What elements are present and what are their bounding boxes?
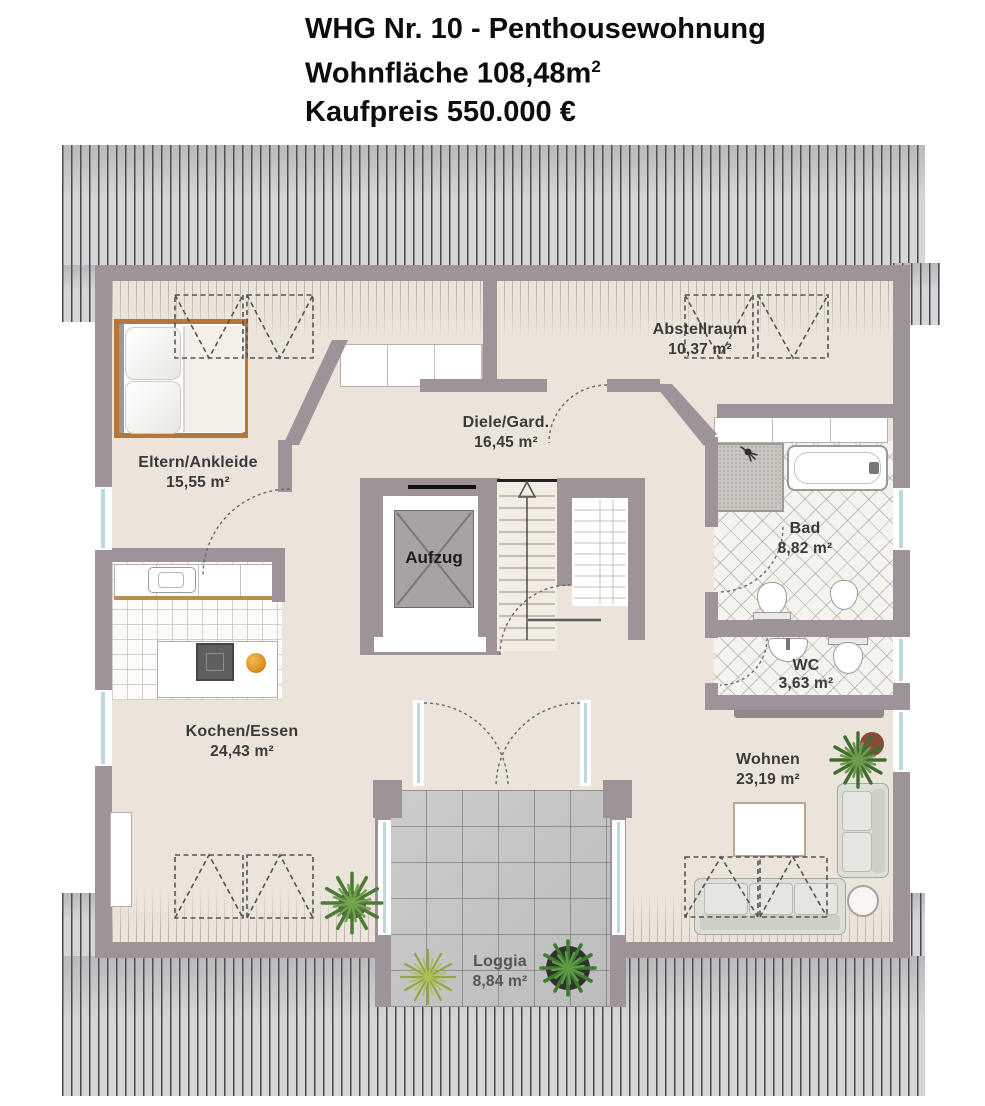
sofa-backrest (700, 915, 840, 930)
room-label-bad: Bad 8,82 m² (778, 519, 833, 559)
room-name: Kochen/Essen (186, 722, 299, 742)
kitchen-counter-edge (114, 596, 282, 600)
room-label-aufzug: Aufzug (405, 548, 463, 568)
bathroom-cabinets (714, 417, 888, 443)
room-name: Abstellraum (653, 320, 748, 340)
kitchen-sink-basin (158, 572, 184, 588)
roof-step-bottom-left (62, 893, 95, 956)
sofa-cushion (842, 832, 872, 872)
wall-diele-west (483, 281, 497, 381)
room-label-diele: Diele/Gard. 16,45 m² (463, 413, 550, 453)
wall-kitchen-top (95, 548, 285, 562)
plan-living-area-sup: 2 (591, 57, 600, 76)
bed-pillow (125, 327, 181, 380)
loggia-window-east (612, 820, 625, 935)
wall-wc-bottom (705, 695, 893, 710)
stairwell-lower-flight (572, 498, 628, 606)
living-room-window (893, 710, 910, 772)
plan-price: Kaufpreis 550.000 € (305, 93, 766, 131)
window-glass (899, 639, 903, 681)
wc-window (893, 637, 910, 683)
room-name: Loggia (473, 952, 528, 972)
window-glass (617, 822, 620, 933)
wall-bad-top (717, 404, 893, 418)
room-area: 16,45 m² (463, 433, 550, 453)
wc-sink-tap (786, 638, 790, 650)
bathroom-window (893, 488, 910, 550)
bathtub-faucet (869, 462, 879, 474)
stair-edge-line (497, 479, 557, 482)
plan-title: WHG Nr. 10 - Penthousewohnung (305, 10, 766, 48)
cooktop-surface (206, 653, 224, 671)
room-name: Diele/Gard. (463, 413, 550, 433)
room-area: 8,84 m² (473, 972, 528, 992)
sofa-cushion (704, 883, 748, 915)
kitchen-counter (114, 564, 282, 598)
room-area: 8,82 m² (778, 539, 833, 559)
window-glass (101, 489, 105, 548)
bathtub-basin (794, 452, 881, 484)
room-area: 3,63 m² (779, 675, 834, 693)
wall-stair-top (557, 478, 645, 498)
coffee-table (733, 802, 806, 857)
wall-diele-top (420, 379, 547, 392)
wall-bad-wc-divider (705, 620, 893, 637)
bed-blanket (183, 326, 245, 432)
loggia-post-east (603, 780, 632, 818)
elevator-service-niche (374, 637, 486, 652)
title-block: WHG Nr. 10 - Penthousewohnung Wohnfläche… (305, 10, 766, 131)
door-glass (584, 703, 587, 783)
cooktop (196, 643, 234, 681)
loggia-window-west (378, 820, 391, 935)
plan-living-area: Wohnfläche 108,48m2 (305, 48, 766, 93)
room-area: 24,43 m² (186, 742, 299, 762)
bed-headboard (119, 324, 124, 433)
door-glass (417, 703, 420, 783)
sofa-backrest (872, 789, 885, 873)
sofa-cushion (794, 883, 838, 915)
room-area: 10,37 m² (653, 340, 748, 360)
roof-band-top (62, 145, 925, 265)
window-glass (383, 822, 386, 933)
fruit-bowl (246, 653, 266, 673)
wall-kitchen-stub (272, 548, 285, 602)
room-label-kochen: Kochen/Essen 24,43 m² (186, 722, 299, 762)
sofa-cushion (749, 883, 793, 915)
kitchen-window (95, 690, 112, 766)
wall-bad-west-a (705, 437, 718, 527)
sideboard-shelf (110, 812, 132, 907)
room-label-wohnen: Wohnen 23,19 m² (736, 750, 800, 790)
roof-step-top-left (62, 265, 95, 322)
window-glass (101, 692, 105, 764)
room-label-eltern: Eltern/Ankleide 15,55 m² (138, 453, 257, 493)
side-table-round (847, 885, 879, 917)
room-name: WC (779, 657, 834, 675)
shower (716, 443, 784, 512)
window-glass (899, 490, 903, 548)
plan-living-area-text: Wohnfläche 108,48m (305, 58, 591, 90)
staircase (497, 481, 557, 651)
wall-abstellraum-south (607, 379, 660, 392)
bedroom-window (95, 487, 112, 550)
wall-stair-east (628, 498, 645, 640)
room-label-abstellraum: Abstellraum 10,37 m² (653, 320, 748, 360)
bed-pillow (125, 381, 181, 434)
sloped-ceiling-hatch-bottom-left (112, 890, 375, 942)
room-name: Bad (778, 519, 833, 539)
loggia-door-leaf-right (580, 700, 591, 786)
wall-eltern-stub (278, 440, 292, 492)
elevator-door (408, 485, 476, 489)
bathroom-toilet-tank (753, 612, 791, 620)
room-label-loggia: Loggia 8,84 m² (473, 952, 528, 992)
room-name: Wohnen (736, 750, 800, 770)
floor-plan-page: WHG Nr. 10 - Penthousewohnung Wohnfläche… (0, 0, 985, 1106)
room-name: Eltern/Ankleide (138, 453, 257, 473)
room-area: 15,55 m² (138, 473, 257, 493)
room-label-wc: WC 3,63 m² (779, 657, 834, 693)
room-area: 23,19 m² (736, 770, 800, 790)
loggia-post-west (373, 780, 402, 818)
sofa-cushion (842, 791, 872, 831)
window-glass (899, 712, 903, 770)
loggia-door-leaf-left (413, 700, 424, 786)
wall-stair-mid (557, 498, 572, 586)
